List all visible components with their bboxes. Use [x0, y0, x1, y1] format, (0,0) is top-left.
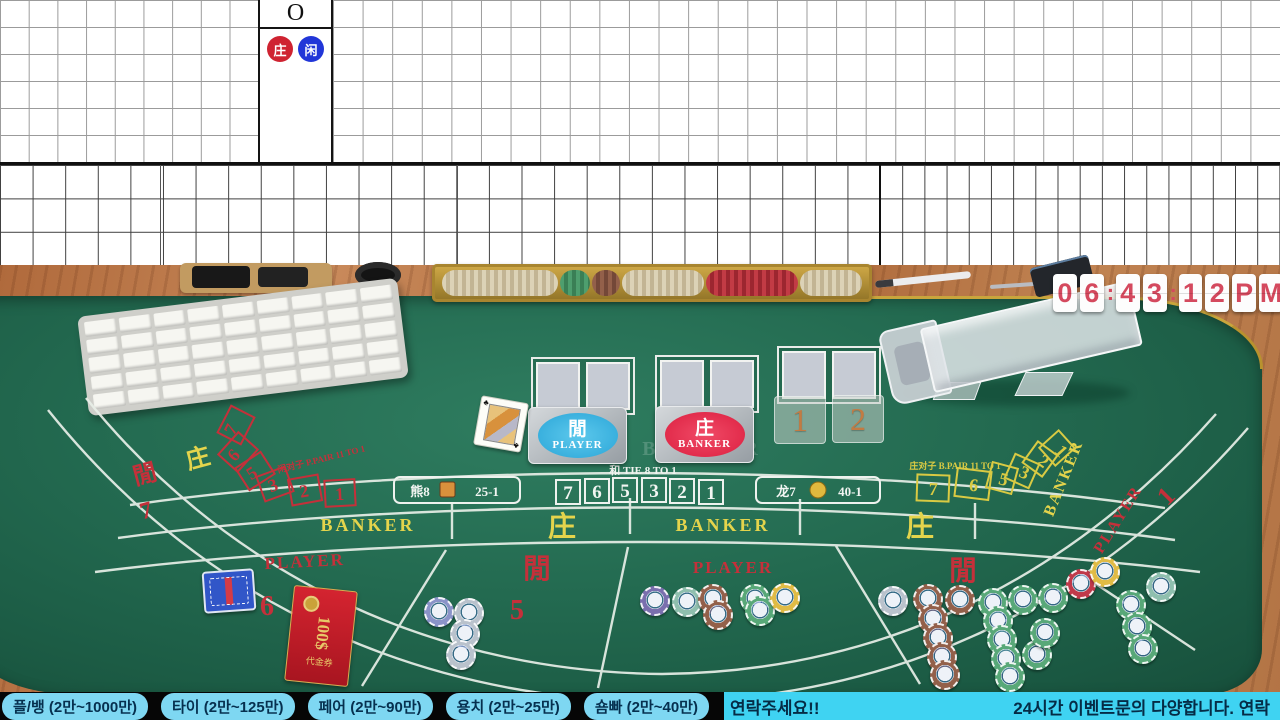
- voucher-amount: 100$: [310, 606, 335, 660]
- bet-number: 3: [649, 481, 659, 502]
- panda-icon: [440, 482, 455, 497]
- player-pair-number: 5: [243, 462, 261, 484]
- bet-number: 7: [563, 483, 573, 504]
- banker-pair-number: 7: [928, 479, 938, 499]
- casino-chip: [930, 660, 960, 690]
- table-markings: 和 TIE 8 TO 1 7 6 5 3 2 1 熊8 25-1 龙7 40-1: [0, 296, 1280, 700]
- banker-zone-label[interactable]: BANKER: [675, 515, 770, 535]
- remote-control: [192, 266, 250, 288]
- clock-colon: :: [1107, 280, 1113, 306]
- player-side-cn: 閒: [130, 460, 160, 491]
- banker-pair-number: 3: [1016, 462, 1032, 484]
- seat-divider-3: [836, 546, 920, 684]
- banker-zone-cn[interactable]: 庄: [548, 510, 576, 543]
- marker-number: 2: [850, 401, 866, 438]
- player-pair-number: 2: [298, 480, 310, 501]
- casino-chip: [703, 600, 733, 630]
- banker-plaque[interactable]: 庄 BANKER: [655, 406, 754, 463]
- casino-chip: [1146, 572, 1176, 602]
- player-pair-number: 1: [335, 484, 345, 504]
- dragon7-odds: 40-1: [838, 484, 862, 499]
- betting-limits-bar: 플/뱅 (2만~1000만) 타이 (2만~125만) 페어 (2만~90만) …: [0, 692, 1280, 720]
- casino-chip: [1038, 583, 1068, 613]
- casino-chip: [878, 586, 908, 616]
- banker-card-slots: [655, 355, 759, 413]
- player-pair-odds-label: 闲对子 P.PAIR 11 TO 1: [276, 442, 366, 475]
- clock-digit: 3: [1143, 274, 1167, 312]
- casino-chip: [1128, 634, 1158, 664]
- coin-icon: [810, 482, 826, 498]
- player-zone-cn[interactable]: 閒: [523, 554, 551, 585]
- big-road-grid-left: [0, 0, 258, 162]
- casino-chip: [446, 640, 476, 670]
- limit-pill-tie[interactable]: 타이 (2만~125만): [161, 693, 295, 720]
- banker-pair-number: 6: [968, 475, 979, 496]
- bet-number: 6: [592, 482, 602, 503]
- baccarat-roadmap-board: O 庄 闲: [0, 0, 1280, 265]
- chip-stack-brown: [592, 270, 620, 296]
- clock-digit: 2: [1205, 274, 1229, 312]
- derived-road-grid-right: [880, 165, 1280, 265]
- casino-chip: [1008, 585, 1038, 615]
- seat-divider-2: [598, 547, 628, 688]
- casino-chip: [640, 586, 670, 616]
- chip-stack-tan: [442, 270, 558, 296]
- card-slot: [710, 360, 754, 408]
- roadmap-legend-column: O 庄 闲: [258, 0, 333, 162]
- limit-pill-super[interactable]: 숌빠 (2만~40만): [584, 693, 709, 720]
- player-plaque-cn: 閒: [568, 420, 587, 439]
- derived-road-subdivider-2: [457, 165, 458, 265]
- panda8-label: 熊8: [410, 484, 430, 499]
- banker-pair-odds-label: 庄对子 B.PAIR 11 TO 1: [909, 460, 1001, 471]
- casino-chip: [1030, 618, 1060, 648]
- clock-digit: 4: [1116, 274, 1140, 312]
- roadmap-column-header: O: [260, 0, 331, 29]
- card-slot: [536, 362, 580, 410]
- seat-number-5: 5: [510, 595, 524, 626]
- baccarat-stream-screen: { "colors":{"felt_green":"#236a50","bank…: [0, 0, 1280, 720]
- derived-road-subdivider: [160, 165, 161, 265]
- marker-tile-2: 2: [832, 395, 884, 443]
- marquee-event-text: 24시간 이벤트문의 다양합니다. 연락: [1013, 694, 1270, 719]
- bet-number: 1: [706, 483, 716, 504]
- clock-digit: 6: [1080, 274, 1104, 312]
- clock-meridiem-m: M: [1259, 274, 1280, 312]
- panda8-odds: 25-1: [475, 484, 499, 499]
- player-pair-number: 3: [265, 474, 280, 496]
- player-zone-label[interactable]: PLAYER: [264, 550, 345, 573]
- casino-chip: [945, 585, 975, 615]
- card-slot: [660, 360, 704, 408]
- clock-meridiem-p: P: [1232, 274, 1256, 312]
- limit-pill-pair[interactable]: 페어 (2만~90만): [308, 693, 433, 720]
- player-zone-cn[interactable]: 閒: [949, 556, 977, 587]
- marquee-contact-text: 연락주세요!!: [730, 694, 820, 719]
- clock-digit: 0: [1053, 274, 1077, 312]
- announcement-marquee: 연락주세요!! 24시간 이벤트문의 다양합니다. 연락: [724, 692, 1280, 720]
- cash-voucher: 100$ 代金券: [284, 585, 358, 687]
- chip-stack-tan-3: [800, 270, 862, 296]
- banker-plaque-en: BANKER: [678, 438, 731, 450]
- limit-pill-player-banker[interactable]: 플/뱅 (2만~1000만): [2, 693, 148, 720]
- blue-marker-plaque: [202, 568, 257, 614]
- banker-legend-badge: 庄: [267, 36, 293, 62]
- clock-colon: :: [1170, 280, 1176, 306]
- player-legend-badge: 闲: [298, 36, 324, 62]
- banker-zone-cn[interactable]: 庄: [906, 510, 934, 543]
- limit-pill-dragon[interactable]: 용치 (2만~25만): [446, 693, 571, 720]
- card-slot: [782, 351, 826, 399]
- dragon7-label: 龙7: [776, 484, 796, 499]
- casino-chip: [1090, 557, 1120, 587]
- derived-road-divider: [879, 165, 881, 265]
- player-plaque-en: PLAYER: [552, 439, 602, 451]
- table-clock: 0 6 : 4 3 : 1 2 P M: [1053, 272, 1280, 314]
- casino-chip: [995, 662, 1025, 692]
- big-road-grid-right: [333, 0, 1280, 162]
- voucher-title: 代金券: [293, 652, 346, 670]
- player-zone-label[interactable]: PLAYER: [693, 558, 773, 577]
- derived-road-grid-left: [0, 165, 880, 265]
- chip-stack-green: [560, 270, 590, 296]
- arc-banker-top: [118, 507, 1175, 540]
- banker-plaque-cn: 庄: [695, 419, 714, 438]
- player-plaque[interactable]: 閒 PLAYER: [528, 407, 627, 464]
- marker-tile-1: 1: [774, 396, 826, 444]
- chip-stack-tan-2: [622, 270, 704, 296]
- banker-zone-label[interactable]: BANKER: [320, 515, 415, 535]
- marker-number: 1: [792, 402, 808, 439]
- player-side-label: PLAYER: [1091, 483, 1146, 557]
- bet-number: 2: [677, 482, 687, 503]
- clock-digit: 1: [1179, 274, 1203, 312]
- bet-number: 5: [620, 481, 630, 502]
- tie-odds-label: 和 TIE 8 TO 1: [609, 463, 676, 477]
- card-slot: [832, 351, 876, 399]
- banker-side-cn: 庄: [183, 442, 213, 475]
- remote-control-2: [258, 267, 308, 287]
- casino-chip: [424, 597, 454, 627]
- playing-card-club-face: ♣ ♣: [473, 395, 529, 453]
- card-slot: [586, 362, 630, 410]
- casino-chip: [770, 583, 800, 613]
- chip-stack-red: [706, 270, 798, 296]
- seat-number-6: 6: [260, 591, 274, 622]
